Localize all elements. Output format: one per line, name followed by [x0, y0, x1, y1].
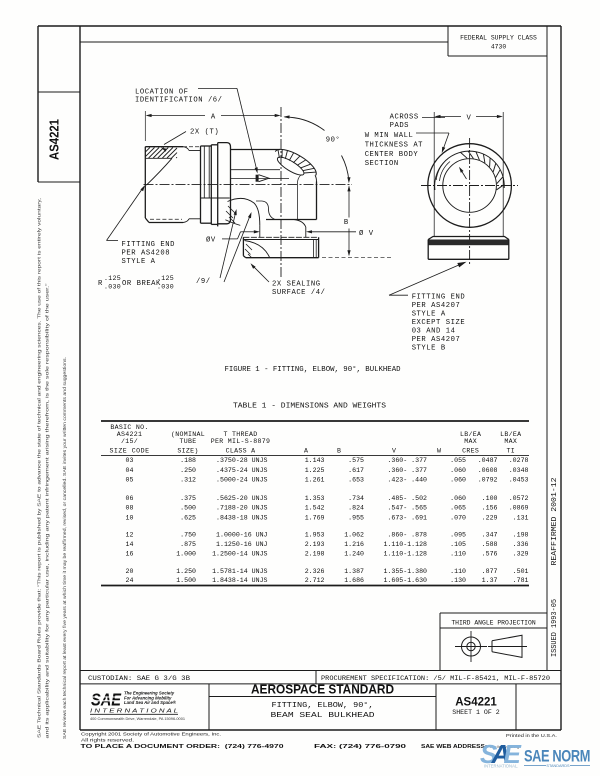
svg-text:.360- .377: .360- .377	[387, 457, 427, 464]
svg-text:.312: .312	[180, 477, 196, 484]
svg-text:.030: .030	[104, 284, 121, 291]
svg-text:SIZE CODE: SIZE CODE	[109, 448, 149, 455]
svg-text:.095: .095	[450, 531, 466, 538]
svg-text:FITTING END: FITTING END	[122, 241, 176, 249]
svg-text:1.353: 1.353	[305, 495, 325, 502]
svg-text:CUSTODIAN: SAE G 3/G 3B: CUSTODIAN: SAE G 3/G 3B	[88, 675, 190, 683]
svg-text:2.198: 2.198	[305, 551, 325, 558]
svg-text:03: 03	[126, 457, 134, 464]
svg-text:1.062: 1.062	[344, 531, 364, 538]
svg-text:2X (T): 2X (T)	[190, 129, 219, 137]
svg-text:.055: .055	[450, 457, 466, 464]
svg-text:.360- .377: .360- .377	[387, 467, 427, 474]
svg-text:.110: .110	[450, 568, 466, 575]
svg-text:1.143: 1.143	[305, 457, 325, 464]
svg-text:MAX: MAX	[464, 438, 477, 445]
svg-text:.8438-18 UNJS: .8438-18 UNJS	[216, 514, 267, 521]
svg-text:LB/EA: LB/EA	[500, 431, 521, 438]
svg-text:1.8438-14 UNJS: 1.8438-14 UNJS	[212, 577, 267, 584]
svg-text:1.387: 1.387	[344, 568, 364, 575]
svg-text:LB/EA: LB/EA	[460, 431, 481, 438]
svg-text:REAFFIRMED 2001-12: REAFFIRMED 2001-12	[551, 478, 559, 566]
svg-text:1.000: 1.000	[176, 551, 196, 558]
svg-text:STYLE A: STYLE A	[122, 258, 156, 266]
svg-text:1.110-1.128: 1.110-1.128	[383, 541, 427, 548]
svg-text:2.326: 2.326	[305, 568, 325, 575]
svg-text:PADS: PADS	[390, 122, 409, 130]
svg-text:1.605-1.630: 1.605-1.630	[383, 577, 427, 584]
svg-text:FIGURE 1 - FITTING, ELBOW, 90°: FIGURE 1 - FITTING, ELBOW, 90°, BULKHEAD	[225, 365, 401, 374]
svg-text:.617: .617	[348, 467, 364, 474]
svg-text:FAX: (724) 776-0790: FAX: (724) 776-0790	[314, 744, 406, 750]
svg-text:.500: .500	[180, 505, 196, 512]
svg-text:TI: TI	[507, 448, 516, 455]
svg-text:.7188-20 UNJS: .7188-20 UNJS	[216, 505, 267, 512]
svg-text:.3750-28 UNJS: .3750-28 UNJS	[216, 457, 267, 464]
svg-text:SIZE): SIZE)	[177, 448, 198, 455]
svg-text:.0572: .0572	[509, 495, 529, 502]
svg-text:All rights reserved.: All rights reserved.	[81, 738, 134, 744]
svg-text:.875: .875	[180, 541, 196, 548]
svg-text:.653: .653	[348, 477, 364, 484]
svg-text:1.225: 1.225	[305, 467, 325, 474]
svg-text:.547- .565: .547- .565	[387, 505, 427, 512]
svg-text:Land Sea Air and Space®: Land Sea Air and Space®	[124, 700, 177, 705]
svg-text:03 AND 14: 03 AND 14	[412, 328, 456, 336]
svg-text:.065: .065	[450, 505, 466, 512]
svg-text:.860- .878: .860- .878	[387, 531, 427, 538]
svg-text:STANDARDS: STANDARDS	[546, 764, 570, 768]
svg-text:SAE reviews each technical rep: SAE reviews each technical report at lea…	[62, 357, 67, 739]
svg-text:and its applicability and suit: and its applicability and suitability fo…	[45, 283, 50, 739]
svg-text:14: 14	[126, 541, 134, 548]
svg-text:12: 12	[126, 531, 134, 538]
svg-text:.824: .824	[348, 505, 364, 512]
svg-text:.110: .110	[450, 551, 466, 558]
svg-text:1.686: 1.686	[344, 577, 364, 584]
svg-text:Ø V: Ø V	[359, 229, 374, 238]
svg-text:/15/: /15/	[121, 438, 138, 445]
svg-text:THIRD ANGLE PROJECTION: THIRD ANGLE PROJECTION	[451, 620, 536, 627]
svg-text:R: R	[98, 280, 103, 288]
svg-text:1.250: 1.250	[176, 568, 196, 575]
svg-text:.0608: .0608	[478, 467, 498, 474]
svg-text:TUBE: TUBE	[179, 438, 196, 445]
svg-text:STYLE A: STYLE A	[412, 311, 446, 319]
svg-text:W: W	[437, 448, 441, 455]
svg-text:IDENTIFICATION /6/: IDENTIFICATION /6/	[135, 97, 223, 105]
svg-text:.105: .105	[450, 541, 466, 548]
svg-text:/9/: /9/	[196, 278, 211, 286]
svg-text:1.542: 1.542	[305, 505, 325, 512]
svg-text:V: V	[392, 448, 396, 455]
svg-text:.5625-20 UNJS: .5625-20 UNJS	[216, 495, 267, 502]
svg-text:A: A	[211, 114, 216, 122]
svg-text:1.37: 1.37	[482, 577, 498, 584]
svg-text:BASIC NO.: BASIC NO.	[110, 424, 148, 431]
svg-text:STYLE B: STYLE B	[412, 345, 446, 353]
svg-text:PER AS4207: PER AS4207	[412, 336, 461, 344]
svg-text:PER MIL-S-8879: PER MIL-S-8879	[211, 438, 271, 445]
svg-text:PER AS4207: PER AS4207	[412, 302, 461, 310]
svg-text:Copyright 2001 Society of Auto: Copyright 2001 Society of Automotive Eng…	[81, 732, 221, 738]
svg-text:BEAM SEAL BULKHEAD: BEAM SEAL BULKHEAD	[271, 712, 375, 720]
svg-text:TO PLACE A DOCUMENT ORDER: (7: TO PLACE A DOCUMENT ORDER: (724) 776-497…	[81, 744, 284, 750]
svg-text:.0453: .0453	[509, 477, 529, 484]
svg-text:.0792: .0792	[478, 477, 498, 484]
svg-text:AS4221: AS4221	[48, 119, 62, 160]
svg-text:INTERNATIONAL.: INTERNATIONAL.	[484, 764, 518, 769]
svg-text:LOCATION OF: LOCATION OF	[135, 89, 189, 97]
svg-text:FITTING END: FITTING END	[412, 294, 466, 302]
svg-text:.4375-24 UNJS: .4375-24 UNJS	[216, 467, 267, 474]
svg-text:.131: .131	[513, 514, 529, 521]
svg-text:400 Commonwealth Drive, Warren: 400 Commonwealth Drive, Warrendale, PA 1…	[90, 716, 186, 721]
svg-text:.673- .691: .673- .691	[387, 514, 427, 521]
svg-text:.955: .955	[348, 514, 364, 521]
svg-text:.588: .588	[482, 541, 498, 548]
svg-text:.347: .347	[482, 531, 498, 538]
svg-text:24: 24	[126, 577, 134, 584]
svg-text:.575: .575	[348, 457, 364, 464]
svg-text:.0487: .0487	[478, 457, 498, 464]
svg-text:.501: .501	[513, 568, 529, 575]
svg-text:1.240: 1.240	[344, 551, 364, 558]
svg-text:EXCEPT SIZE: EXCEPT SIZE	[412, 319, 466, 327]
svg-text:.130: .130	[450, 577, 466, 584]
svg-text:THICKNESS AT: THICKNESS AT	[365, 141, 423, 149]
svg-text:CENTER BODY: CENTER BODY	[365, 151, 419, 159]
svg-text:04: 04	[126, 467, 134, 474]
svg-text:TABLE 1 - DIMENSIONS AND WEIGH: TABLE 1 - DIMENSIONS AND WEIGHTS	[233, 402, 386, 410]
svg-text:.750: .750	[180, 531, 196, 538]
svg-text:PER AS4208: PER AS4208	[122, 249, 171, 257]
svg-text:1.953: 1.953	[305, 531, 325, 538]
svg-text:.375: .375	[180, 495, 196, 502]
svg-text:CRES: CRES	[462, 448, 479, 455]
svg-text:SAE: SAE	[91, 690, 122, 710]
svg-text:1.2500-14 UNJS: 1.2500-14 UNJS	[212, 551, 267, 558]
svg-text:1.216: 1.216	[344, 541, 364, 548]
svg-text:CLASS A: CLASS A	[226, 448, 256, 455]
svg-text:.030: .030	[157, 284, 174, 291]
svg-text:1.355-1.380: 1.355-1.380	[383, 568, 427, 575]
svg-text:.060: .060	[450, 495, 466, 502]
svg-text:.060: .060	[450, 477, 466, 484]
svg-text:1.5781-14 UNJS: 1.5781-14 UNJS	[212, 568, 267, 575]
svg-text:.156: .156	[482, 505, 498, 512]
svg-text:B: B	[337, 448, 341, 455]
svg-text:.060: .060	[450, 467, 466, 474]
svg-text:FITTING, ELBOW, 90°,: FITTING, ELBOW, 90°,	[272, 701, 374, 710]
svg-text:.5000-24 UNJS: .5000-24 UNJS	[216, 477, 267, 484]
svg-text:.0869: .0869	[509, 505, 529, 512]
svg-text:A: A	[304, 448, 308, 455]
svg-text:1.500: 1.500	[176, 577, 196, 584]
svg-text:I N T E R N A T I O N A L: I N T E R N A T I O N A L	[90, 709, 178, 715]
svg-text:.229: .229	[482, 514, 498, 521]
svg-text:W MIN WALL: W MIN WALL	[365, 132, 414, 140]
svg-text:B: B	[344, 219, 349, 227]
svg-text:90°: 90°	[326, 136, 341, 145]
svg-text:T THREAD: T THREAD	[223, 431, 257, 438]
svg-text:2.712: 2.712	[305, 577, 325, 584]
svg-text:V: V	[467, 115, 472, 123]
svg-text:.336: .336	[513, 541, 529, 548]
svg-text:.100: .100	[482, 495, 498, 502]
svg-text:.576: .576	[482, 551, 498, 558]
svg-text:ACROSS: ACROSS	[390, 113, 419, 121]
svg-text:(NOMINAL: (NOMINAL	[171, 431, 205, 438]
svg-text:SAE Technical Standards Board: SAE Technical Standards Board Rules prov…	[37, 198, 42, 738]
svg-text:.781: .781	[513, 577, 529, 584]
svg-text:.485- .502: .485- .502	[387, 495, 427, 502]
svg-text:SURFACE /4/: SURFACE /4/	[272, 289, 326, 297]
svg-text:.423- .440: .423- .440	[387, 477, 427, 484]
svg-text:2X SEALING: 2X SEALING	[272, 281, 321, 289]
svg-text:AS4221: AS4221	[455, 697, 497, 709]
svg-text:FEDERAL SUPPLY CLASS: FEDERAL SUPPLY CLASS	[460, 35, 537, 42]
svg-text:.198: .198	[513, 531, 529, 538]
svg-text:1.110-1.128: 1.110-1.128	[383, 551, 427, 558]
svg-text:.0348: .0348	[509, 467, 529, 474]
svg-text:OR BREAK: OR BREAK	[122, 280, 161, 288]
svg-text:.070: .070	[450, 514, 466, 521]
svg-text:08: 08	[126, 505, 134, 512]
svg-text:ØV: ØV	[206, 236, 216, 245]
svg-text:.250: .250	[180, 467, 196, 474]
svg-text:1.0000-16 UNJ: 1.0000-16 UNJ	[216, 531, 267, 538]
svg-text:2.193: 2.193	[305, 541, 325, 548]
svg-text:.329: .329	[513, 551, 529, 558]
svg-text:.0278: .0278	[509, 457, 529, 464]
svg-text:16: 16	[126, 551, 134, 558]
svg-text:.125: .125	[104, 275, 121, 282]
svg-text:AS4221: AS4221	[117, 431, 143, 438]
svg-text:SAE WEB ADDRESS:: SAE WEB ADDRESS:	[421, 744, 487, 750]
svg-text:20: 20	[126, 568, 134, 575]
svg-text:ISSUED 1993-05: ISSUED 1993-05	[551, 599, 559, 657]
svg-text:MAX: MAX	[504, 438, 517, 445]
svg-text:10: 10	[126, 514, 134, 521]
svg-text:AEROSPACE STANDARD: AEROSPACE STANDARD	[251, 682, 394, 696]
svg-text:.734: .734	[348, 495, 364, 502]
svg-text:.625: .625	[180, 514, 196, 521]
svg-text:.877: .877	[482, 568, 498, 575]
svg-text:.188: .188	[180, 457, 196, 464]
svg-text:05: 05	[126, 477, 134, 484]
svg-text:.125: .125	[157, 275, 174, 282]
svg-text:SECTION: SECTION	[365, 160, 399, 168]
svg-text:4730: 4730	[491, 44, 507, 51]
svg-text:1.769: 1.769	[305, 514, 325, 521]
svg-text:06: 06	[126, 495, 134, 502]
svg-text:SAE NORM: SAE NORM	[524, 747, 590, 766]
svg-text:SHEET 1 OF 2: SHEET 1 OF 2	[452, 709, 500, 716]
svg-text:1.261: 1.261	[305, 477, 325, 484]
svg-text:1.1250-16 UNJ: 1.1250-16 UNJ	[216, 541, 267, 548]
